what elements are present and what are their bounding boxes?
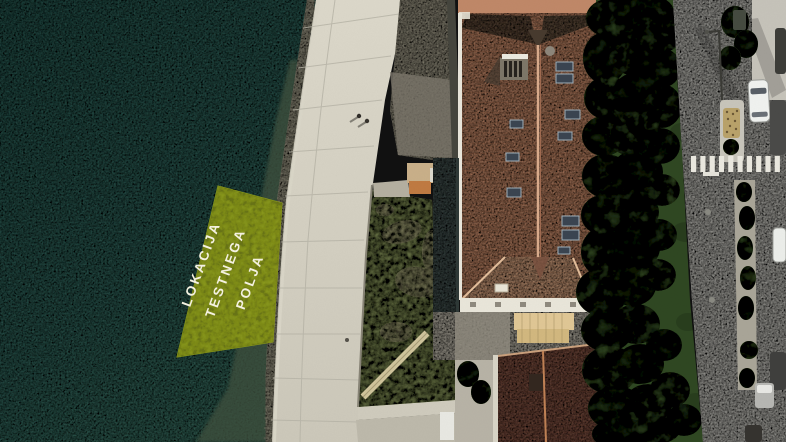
aerial-map: LOKACIJA TESTNEGA POLJA — [0, 0, 786, 442]
photo-grain — [0, 0, 786, 442]
aerial-map-canvas: LOKACIJA TESTNEGA POLJA — [0, 0, 786, 442]
